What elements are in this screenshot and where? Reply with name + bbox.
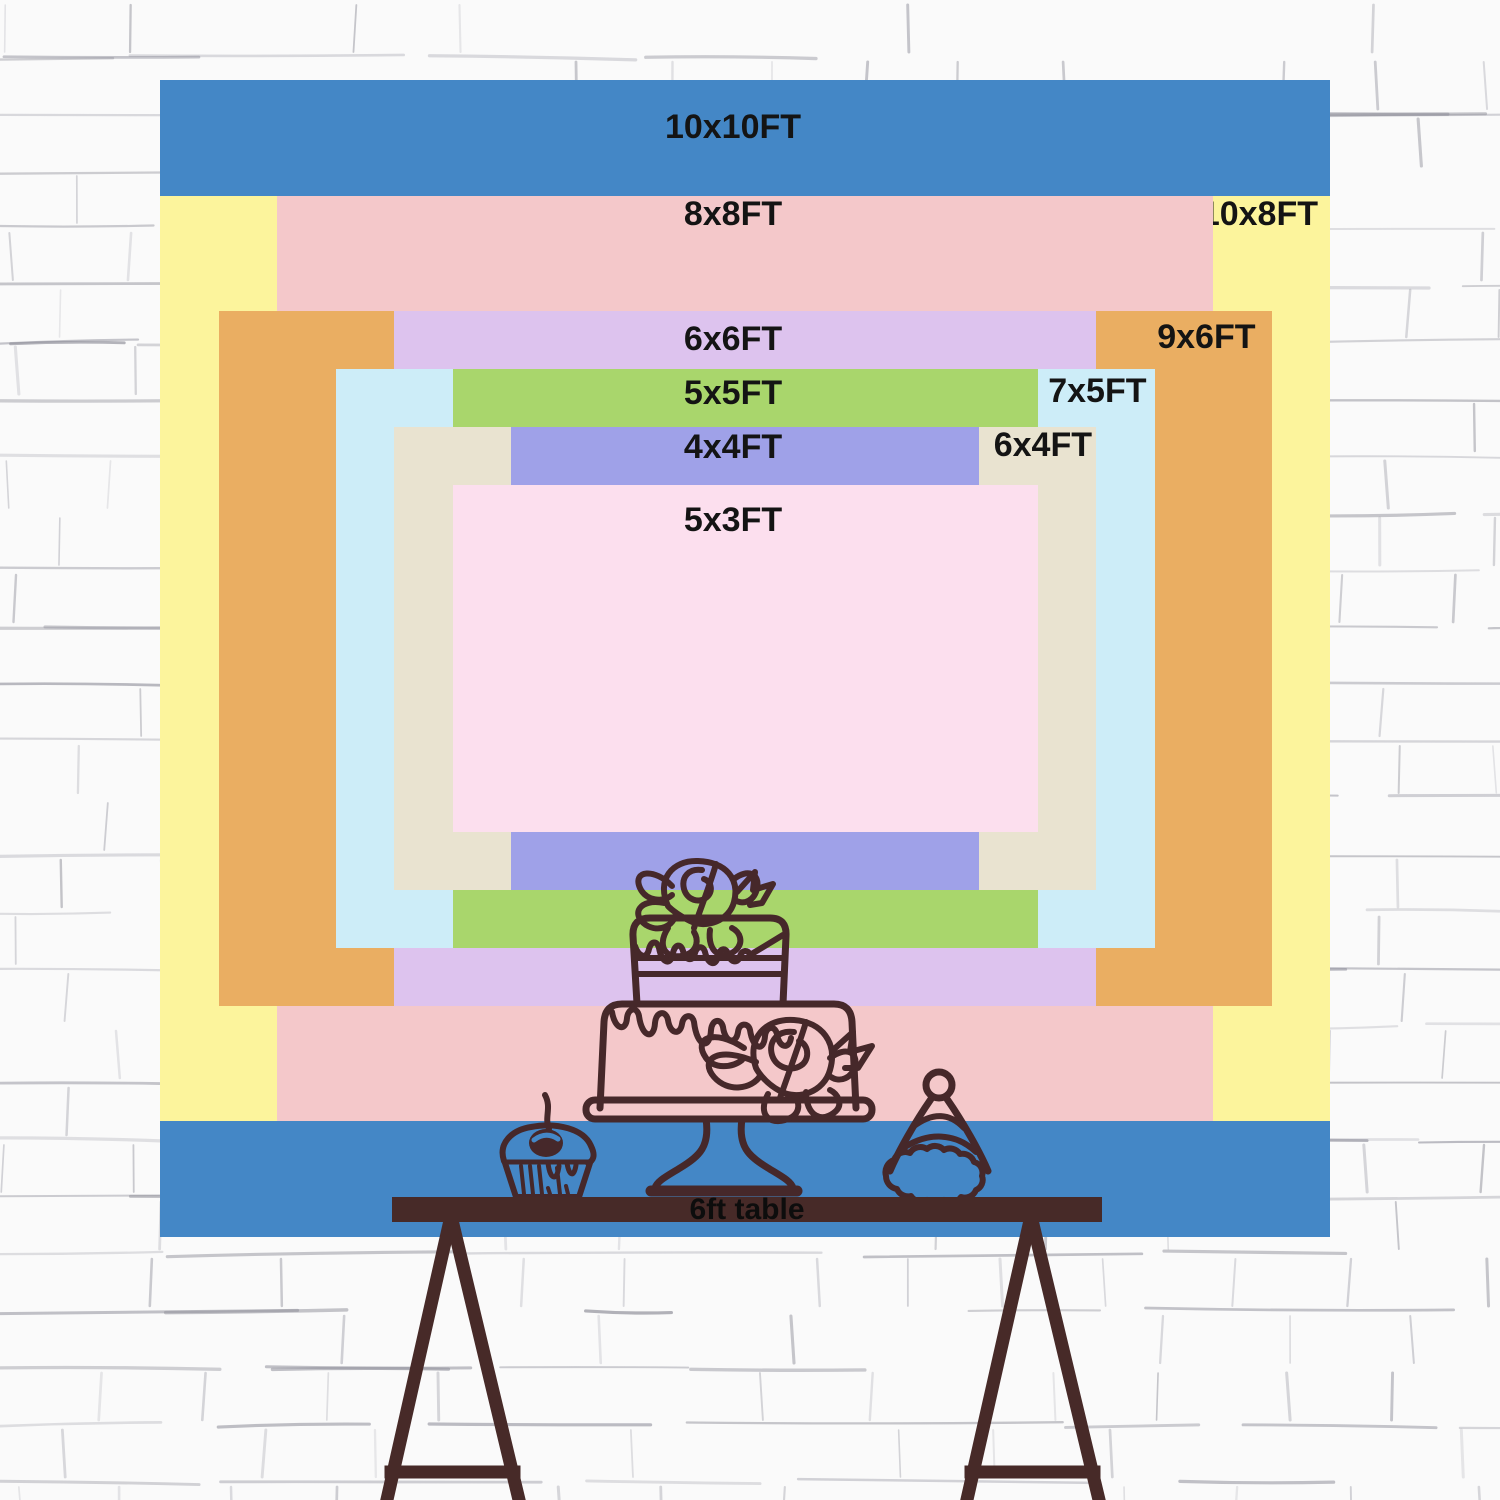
size-label-7x5ft: 7x5FT — [1048, 371, 1146, 412]
size-label-9x6ft: 9x6FT — [1157, 317, 1255, 358]
size-label-6x6ft: 6x6FT — [382, 319, 1084, 360]
table-label: 6ft table — [689, 1197, 804, 1222]
size-label-6x4ft: 6x4FT — [994, 425, 1092, 466]
size-label-8x8ft: 8x8FT — [265, 194, 1201, 235]
size-layer-5x3ft: 5x3FT — [453, 485, 1038, 832]
size-label-5x5ft: 5x5FT — [441, 373, 1026, 414]
size-label-4x4ft: 4x4FT — [499, 427, 967, 468]
table-top: 6ft table — [392, 1197, 1102, 1222]
size-label-10x10ft: 10x10FT — [148, 107, 1318, 148]
backdrop-size-chart: 10x10FT10x8FT8x8FT9x6FT6x6FT7x5FT5x5FT6x… — [0, 0, 1500, 1500]
size-label-10x8ft: 10x8FT — [1201, 194, 1318, 235]
size-label-5x3ft: 5x3FT — [441, 500, 1026, 541]
